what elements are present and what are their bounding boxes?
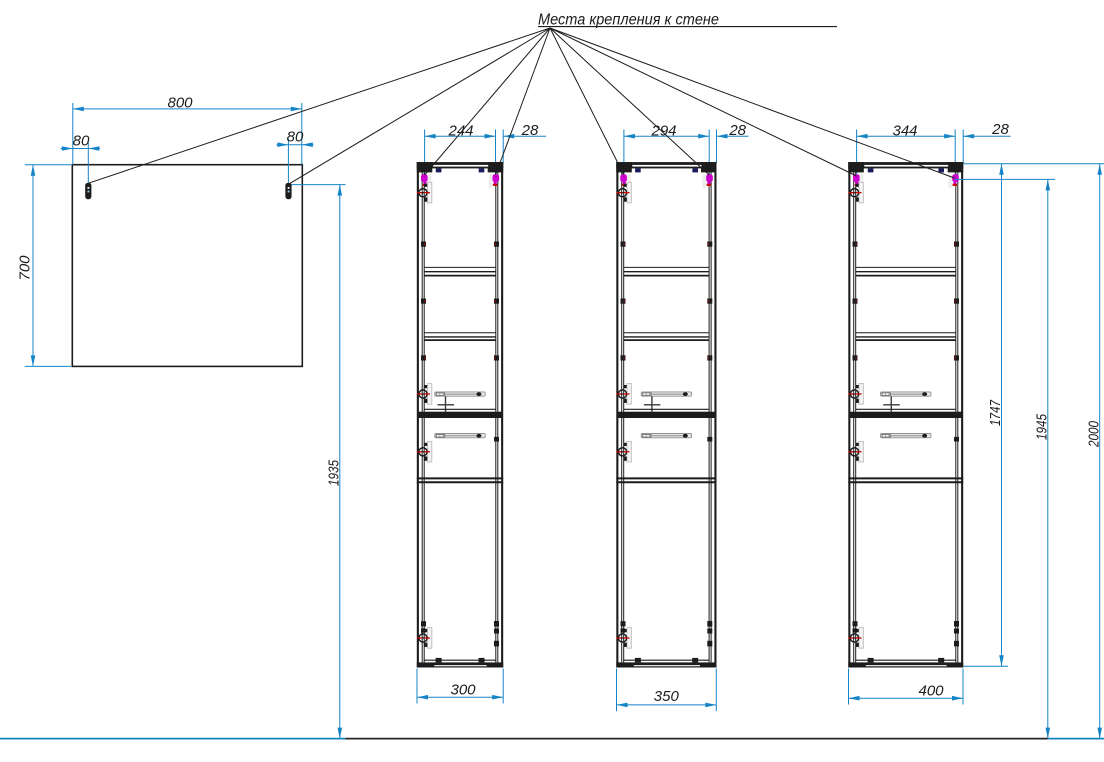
- svg-text:2000: 2000: [1085, 420, 1102, 447]
- svg-text:700: 700: [17, 255, 34, 281]
- svg-text:400: 400: [918, 682, 944, 699]
- svg-text:28: 28: [521, 122, 539, 139]
- svg-text:80: 80: [73, 132, 90, 149]
- svg-text:28: 28: [991, 121, 1009, 138]
- svg-text:28: 28: [728, 122, 746, 139]
- svg-text:80: 80: [287, 129, 304, 146]
- svg-text:800: 800: [167, 94, 193, 111]
- svg-text:1935: 1935: [325, 459, 342, 486]
- svg-text:1747: 1747: [987, 399, 1004, 426]
- svg-text:244: 244: [447, 122, 473, 139]
- svg-text:350: 350: [654, 688, 680, 705]
- svg-text:300: 300: [450, 681, 476, 698]
- svg-text:344: 344: [892, 122, 917, 139]
- svg-text:1945: 1945: [1034, 413, 1051, 440]
